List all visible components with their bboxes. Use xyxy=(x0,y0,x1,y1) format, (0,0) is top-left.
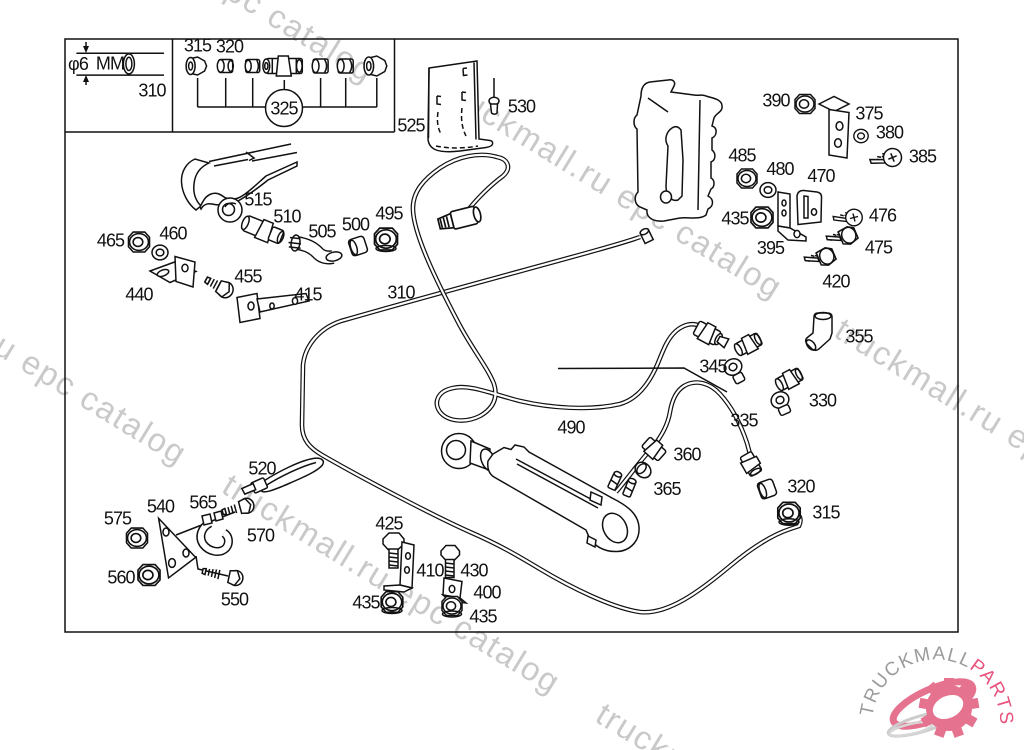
svg-text:345: 345 xyxy=(699,357,727,377)
svg-text:400: 400 xyxy=(473,583,501,603)
svg-text:570: 570 xyxy=(247,526,275,546)
svg-text:515: 515 xyxy=(244,190,272,210)
svg-text:530: 530 xyxy=(508,97,536,117)
svg-text:560: 560 xyxy=(107,568,135,588)
svg-text:510: 510 xyxy=(273,207,301,227)
svg-text:390: 390 xyxy=(762,91,790,111)
svg-text:470: 470 xyxy=(807,166,835,186)
svg-text:420: 420 xyxy=(822,272,850,292)
svg-text:320: 320 xyxy=(216,37,244,57)
svg-text:575: 575 xyxy=(104,509,132,529)
svg-text:460: 460 xyxy=(159,224,187,244)
svg-text:495: 495 xyxy=(375,204,403,224)
svg-text:485: 485 xyxy=(728,146,756,166)
svg-text:395: 395 xyxy=(757,238,785,258)
svg-text:φ6: φ6 xyxy=(68,54,89,74)
svg-text:480: 480 xyxy=(766,159,794,179)
svg-text:415: 415 xyxy=(294,285,322,305)
svg-text:365: 365 xyxy=(653,479,681,499)
svg-text:360: 360 xyxy=(673,445,701,465)
svg-text:425: 425 xyxy=(375,514,403,534)
svg-text:435: 435 xyxy=(469,607,497,627)
svg-text:476: 476 xyxy=(869,206,897,226)
svg-text:475: 475 xyxy=(865,238,893,258)
svg-text:465: 465 xyxy=(97,231,125,251)
svg-text:525: 525 xyxy=(397,116,425,136)
svg-text:430: 430 xyxy=(460,561,488,581)
svg-text:435: 435 xyxy=(352,593,380,613)
svg-text:325: 325 xyxy=(270,99,298,119)
svg-text:500: 500 xyxy=(342,215,370,235)
svg-text:410: 410 xyxy=(416,561,444,581)
svg-text:330: 330 xyxy=(809,391,837,411)
svg-text:MM: MM xyxy=(96,54,124,74)
svg-text:550: 550 xyxy=(221,590,249,610)
svg-text:565: 565 xyxy=(189,493,217,513)
svg-text:385: 385 xyxy=(909,147,937,167)
svg-text:520: 520 xyxy=(248,459,276,479)
svg-text:315: 315 xyxy=(812,503,840,523)
svg-text:435: 435 xyxy=(721,209,749,229)
svg-text:310: 310 xyxy=(138,81,166,101)
svg-text:315: 315 xyxy=(184,36,212,56)
svg-text:540: 540 xyxy=(147,497,175,517)
svg-text:380: 380 xyxy=(876,123,904,143)
svg-text:440: 440 xyxy=(125,285,153,305)
svg-text:355: 355 xyxy=(845,327,873,347)
svg-text:375: 375 xyxy=(855,104,883,124)
svg-text:310: 310 xyxy=(387,283,415,303)
svg-text:335: 335 xyxy=(730,411,758,431)
svg-text:490: 490 xyxy=(557,418,585,438)
svg-text:455: 455 xyxy=(234,267,262,287)
svg-text:505: 505 xyxy=(308,222,336,242)
svg-text:320: 320 xyxy=(787,477,815,497)
